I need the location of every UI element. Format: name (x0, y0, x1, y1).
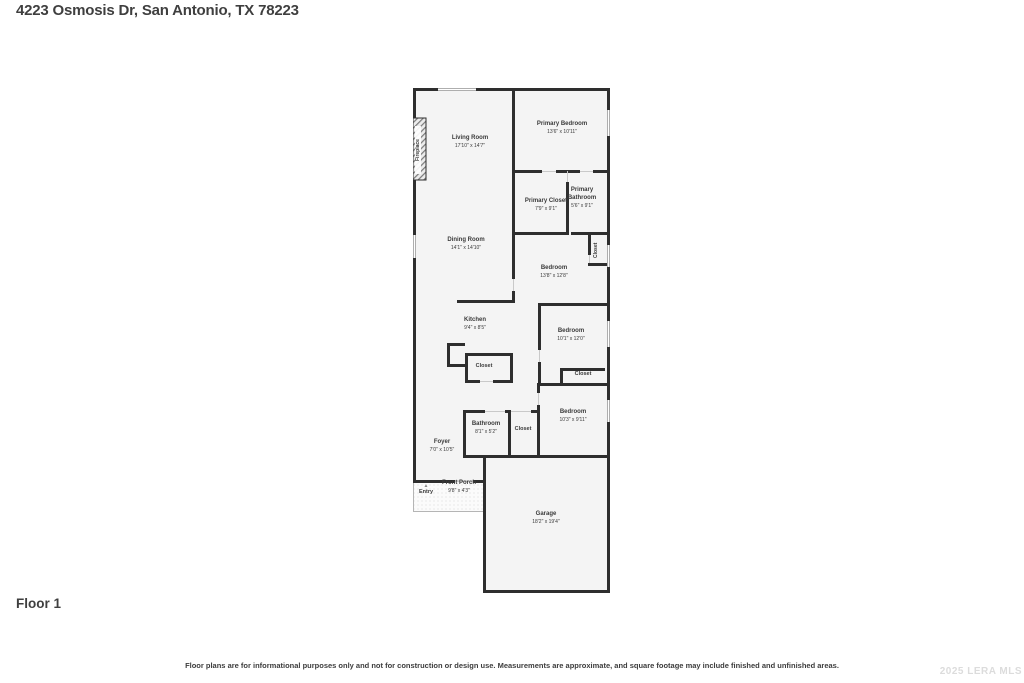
room-dims: 13'6" x 10'11" (522, 129, 602, 136)
room-name: Bedroom (541, 328, 601, 336)
room-label-living: Living Room 17'10" x 14'7" (440, 135, 500, 149)
room-label-kitchen: Kitchen 9'4" x 8'5" (445, 317, 505, 331)
room-dims: 9'4" x 8'5" (445, 325, 505, 332)
room-label-dining: Dining Room 14'1" x 14'10" (436, 237, 496, 251)
room-label-front-porch: Front Porch 9'8" x 4'3" (433, 480, 485, 494)
closet-label-bedroom-2: Closet (593, 238, 599, 262)
room-label-bedroom-3: Bedroom 10'1" x 12'0" (541, 328, 601, 342)
room-label-bedroom-4: Bedroom 10'3" x 9'11" (543, 409, 603, 423)
room-name: Living Room (440, 135, 500, 143)
closet-label-hall: Closet (509, 426, 537, 433)
room-dims: 17'10" x 14'7" (440, 143, 500, 150)
room-label-garage: Garage 18'2" x 19'4" (516, 511, 576, 525)
disclaimer-text: Floor plans are for informational purpos… (0, 661, 1024, 670)
room-name: Kitchen (445, 317, 505, 325)
room-dims: 10'1" x 12'0" (541, 336, 601, 343)
room-name: Primary Bathroom (564, 187, 600, 203)
room-name: Garage (516, 511, 576, 519)
floor-label: Floor 1 (16, 596, 61, 611)
room-name: Bedroom (543, 409, 603, 417)
room-dims: 8'1" x 5'2" (464, 429, 508, 436)
room-name: Bedroom (524, 265, 584, 273)
room-label-bedroom-2: Bedroom 13'8" x 12'8" (524, 265, 584, 279)
room-dims: 13'8" x 12'8" (524, 273, 584, 280)
room-dims: 10'3" x 9'11" (543, 417, 603, 424)
closet-label-kitchen: Closet (464, 363, 504, 370)
mls-watermark: 2025 LERA MLS (940, 666, 1022, 677)
room-label-foyer: Foyer 7'0" x 10'5" (417, 439, 467, 453)
closet-label: Closet (464, 363, 504, 370)
room-name: Dining Room (436, 237, 496, 245)
room-name: Primary Bedroom (522, 121, 602, 129)
room-dims: 9'8" x 4'3" (433, 488, 485, 495)
room-name: Front Porch (433, 480, 485, 488)
entry-label: Entry (415, 489, 437, 497)
room-dims: 18'2" x 19'4" (516, 519, 576, 526)
page-title: 4223 Osmosis Dr, San Antonio, TX 78223 (16, 2, 299, 19)
room-label-bathroom: Bathroom 8'1" x 5'2" (464, 421, 508, 435)
room-name: Bathroom (464, 421, 508, 429)
closet-label: Closet (509, 426, 537, 433)
entry-marker: ▲ Entry (415, 484, 437, 497)
room-dims: 5'6" x 9'1" (564, 203, 600, 210)
room-dims: 7'0" x 10'5" (417, 447, 467, 454)
room-name: Foyer (417, 439, 467, 447)
floorplan: Living Room 17'10" x 14'7" Primary Bedro… (413, 88, 610, 593)
fireplace-label: Fireplace (415, 126, 421, 174)
closet-label: Closet (563, 371, 603, 378)
closet-label-bedroom-3: Closet (563, 371, 603, 378)
room-label-primary-bathroom: Primary Bathroom 5'6" x 9'1" (564, 187, 600, 209)
room-label-primary-bedroom: Primary Bedroom 13'6" x 10'11" (522, 121, 602, 135)
room-dims: 14'1" x 14'10" (436, 245, 496, 252)
